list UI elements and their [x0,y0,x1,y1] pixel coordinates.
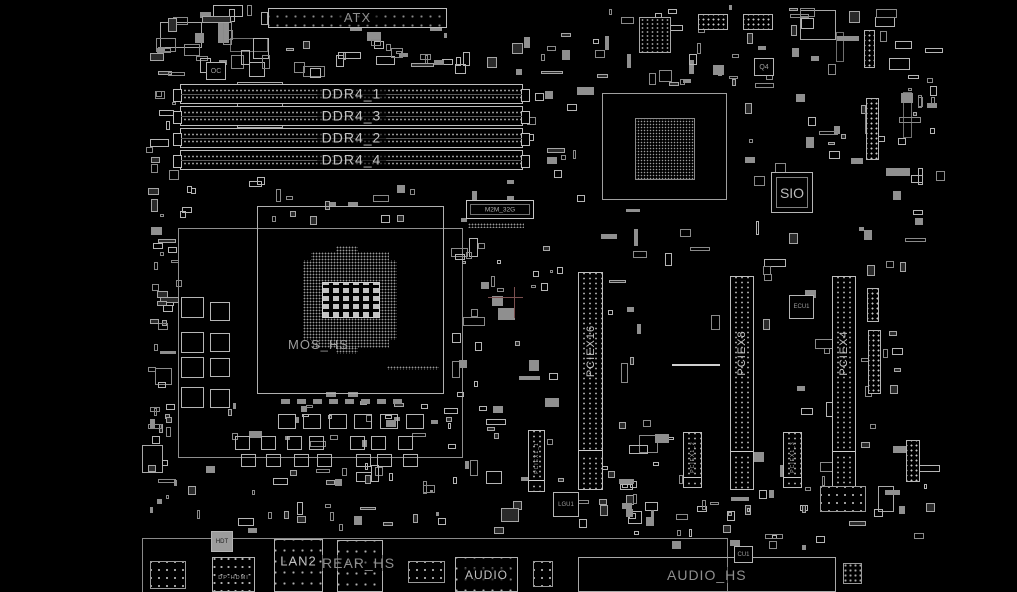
smd-component [800,8,815,17]
smd-component [925,48,943,53]
smd-component [924,484,927,489]
smd-component [646,517,654,526]
smd-component [210,358,230,377]
smd-component [898,138,906,145]
smd-component [908,88,912,91]
smd-component [309,436,324,450]
q4-chip[interactable]: Q4 [754,58,774,76]
smd-component [475,342,482,351]
smd-component [252,490,255,495]
smd-component [210,302,230,321]
pin-grid-tab [336,246,358,253]
smd-component [160,351,176,354]
smd-component [455,254,465,260]
trace-segment [672,364,720,366]
smd-component [486,471,502,484]
smd-component [764,274,772,281]
rear-connector[interactable] [408,561,445,583]
smd-component [801,18,814,29]
slot-latch[interactable] [173,155,182,168]
smd-component [802,545,806,550]
smd-component [529,360,539,371]
smd-component [507,180,514,184]
smd-component [223,21,232,45]
smd-component [448,444,456,449]
smd-component [420,54,431,60]
smd-component [732,54,739,58]
smd-component [210,333,230,352]
smd-component [841,134,846,139]
smd-component [759,490,767,499]
smd-component [330,435,338,440]
smd-component [303,41,310,49]
smd-component [501,508,519,522]
smd-component [146,147,153,153]
ddr4-slot-4-label: DDR4_4 [317,151,387,167]
smd-component [310,68,321,78]
smd-component [749,139,753,143]
smd-component [423,485,435,493]
smd-component [273,478,288,485]
smd-component [899,117,921,123]
smd-component [547,157,557,164]
smd-component [150,139,169,147]
smd-component [680,229,691,237]
smd-component [448,423,451,429]
smd-component [874,509,883,517]
smd-component [386,44,391,51]
smd-component [659,70,672,82]
slot-latch[interactable] [521,155,530,168]
smd-component [915,218,923,225]
ecu1-chip[interactable]: ECU1 [789,295,814,319]
smd-component [197,510,200,519]
smd-component [876,9,897,18]
smd-component [158,382,166,388]
smd-component [462,261,466,264]
smd-component [758,46,766,50]
lan2-label: LAN2 [278,554,319,569]
smd-component [154,408,157,416]
smd-component [683,79,691,83]
smd-component [486,419,506,425]
smd-component [371,465,379,482]
cu1-chip[interactable]: CU1 [734,546,753,563]
smd-component [377,454,392,467]
smd-component [412,433,426,437]
smd-component [791,25,797,36]
smd-component [181,332,204,353]
smd-component [268,512,272,519]
smd-component [512,43,523,54]
smd-component [554,170,562,178]
smd-component [465,461,469,469]
ddr4-slot-3-label: DDR4_3 [317,107,387,123]
smd-component [851,158,863,164]
smd-component [284,511,289,519]
pciex4-slot[interactable]: PCIEX4 [832,276,856,490]
slot-latch[interactable] [173,111,182,124]
smd-component [670,25,683,31]
smd-component [365,475,371,484]
smd-component [210,389,230,408]
smd-component [436,512,439,516]
smd-component [577,87,594,95]
q4-label: Q4 [759,64,768,71]
m2-connector[interactable]: M2M_32G [466,200,534,219]
smd-component [930,128,935,134]
smd-component [801,408,813,415]
smd-component [805,487,811,491]
smd-component [593,39,599,44]
smd-component [557,267,563,274]
smd-component [297,399,306,404]
smd-component [649,73,656,85]
smd-component [899,506,905,514]
smd-component [533,271,539,277]
smd-component [543,246,550,251]
smd-component [316,469,330,473]
smd-component [497,288,504,292]
smd-component [329,399,338,404]
smd-component [541,71,563,74]
atx-label: ATX [338,10,377,25]
smd-component [690,247,710,251]
ddr4-slot-2[interactable]: DDR4_2 [180,128,523,148]
smd-component [403,454,418,467]
smd-component [816,536,825,543]
smd-component [637,324,641,334]
smd-component [672,541,681,549]
fan-header[interactable] [743,14,773,30]
smd-component [769,490,774,498]
smd-component [166,121,170,130]
socket-pad-array [322,282,380,318]
smd-component [286,48,294,51]
rear-hs-edge [142,538,143,592]
smd-component [377,399,386,404]
cu1-label: CU1 [737,552,749,558]
oc-label: OC [211,68,222,75]
smd-component [756,221,759,235]
smd-component [168,18,177,32]
smd-component [608,471,615,478]
smd-component [789,8,798,11]
pin-grid-notch [303,252,311,260]
smd-component [634,229,638,246]
rear-connector[interactable] [150,561,186,589]
smd-component [711,315,720,330]
smd-component [531,285,536,288]
smd-component [634,531,639,535]
smd-component [181,297,204,318]
smd-component [913,112,917,116]
pin-header[interactable] [864,30,875,68]
slot-latch[interactable] [521,89,530,102]
smd-component [487,57,497,68]
smd-component [913,210,923,215]
smd-component [765,534,783,539]
smd-component [241,454,256,467]
smd-component [410,189,415,195]
ddr4-slot-3[interactable]: DDR4_3 [180,106,523,126]
atx-tab [261,12,268,25]
slot-latch[interactable] [521,133,530,146]
smd-component [459,360,467,368]
smd-component [547,439,553,445]
smd-component [233,403,236,409]
smd-component [174,480,177,486]
smd-component [494,433,499,439]
smd-component [689,54,697,65]
smd-component [621,17,634,24]
smd-component [301,406,307,412]
smd-component [643,420,651,427]
smd-component [829,151,840,159]
pciex1-2-slot[interactable]: PCIEX1_2 [683,432,702,488]
smd-component [806,137,814,148]
smd-component [188,486,196,495]
smd-component [535,93,544,101]
smd-component [306,405,313,408]
smd-component [166,417,172,423]
smd-component [493,406,503,413]
smd-component [541,283,548,291]
smd-component [389,473,393,481]
smd-component [792,48,799,57]
smd-component [148,367,156,372]
smd-component [453,477,457,484]
smd-component [930,86,937,96]
smd-component [755,83,774,88]
pciex1-2-label: PCIEX1_2 [690,432,696,482]
smd-component [676,514,688,520]
smd-component [463,317,485,326]
pin-header[interactable] [868,330,881,394]
pciex4-label: PCIEX4 [838,308,850,398]
smd-component [166,427,171,437]
smd-component [901,93,913,103]
smd-component [561,155,566,160]
smd-component [608,310,613,315]
smd-component [413,514,418,523]
smd-component [914,533,924,539]
smd-component [727,511,735,521]
smd-component [380,414,398,429]
smd-component [184,44,200,56]
smd-component [294,454,309,467]
smd-component [601,234,617,239]
smd-component [176,280,182,287]
sata-connector[interactable] [820,486,866,512]
smd-component [470,460,478,476]
smd-component [150,53,164,61]
smd-component [626,209,640,212]
smd-component [498,308,515,320]
smd-component [549,373,558,380]
smd-component [864,230,872,240]
smd-component [356,454,371,467]
smd-component [927,78,933,83]
smd-component [630,357,634,365]
smd-component [665,253,672,266]
smd-component [926,503,935,512]
smd-component [431,420,438,424]
smd-component [837,36,859,41]
smd-component [150,507,153,513]
smd-component [266,454,281,467]
slot-latch[interactable] [173,89,182,102]
pin-grid-notch [389,340,397,348]
hdt-chip[interactable]: HDT [211,531,233,552]
smd-component [162,460,168,466]
smd-component [158,323,168,330]
smd-component [463,52,470,66]
smd-component [828,64,836,75]
smd-component [524,37,530,48]
front-panel-header[interactable] [866,98,879,160]
smd-component [651,510,654,517]
lgu1-label: LGU1 [558,502,574,508]
smd-component [160,214,164,217]
pin-header[interactable] [867,288,879,322]
fan-header[interactable] [698,14,728,30]
smd-component [629,445,648,454]
slot-latch[interactable] [521,111,530,124]
smd-component [438,518,446,525]
smd-component [796,94,805,102]
u2-chip[interactable] [639,17,671,53]
smd-component [754,176,765,186]
smd-component [159,110,174,116]
smd-component [156,38,176,52]
smd-component [562,50,570,60]
smd-component [731,497,749,501]
smd-component [600,505,608,516]
rear-connector[interactable] [533,561,553,587]
smd-component [519,376,540,380]
smd-component [354,516,362,525]
ddr4-slot-4[interactable]: DDR4_4 [180,150,523,170]
smd-component [371,39,381,46]
smd-component [235,436,250,450]
smd-component [157,499,162,504]
smd-component [597,74,608,78]
smd-component [150,319,159,324]
smd-component [870,424,876,429]
mos-hs-label: MOS_HS [288,337,349,352]
slot-latch[interactable] [173,133,182,146]
smd-component [373,195,389,202]
ddr4-slot-1[interactable]: DDR4_1 [180,84,523,104]
smd-component [156,91,162,97]
smd-component [911,175,923,183]
smd-component [936,171,945,181]
smd-component [457,392,464,397]
smd-component [669,82,679,86]
smd-component [181,357,204,378]
pciex1-3-slot[interactable]: PCIEX1_3 [783,432,802,488]
smd-component [345,399,354,404]
smd-component [281,399,290,404]
smd-component [335,479,342,486]
smd-component [861,442,870,448]
smd-component [154,262,158,270]
smd-component [478,243,485,249]
pciex8-slot[interactable]: PCIEX8 [730,276,754,490]
smd-component [567,104,577,111]
smd-component [849,521,866,526]
smd-component [653,462,659,466]
smd-component [446,417,452,422]
smd-component [550,270,553,273]
smd-component [181,387,204,408]
smd-component [383,522,393,526]
atx-power-connector[interactable]: ATX [268,8,447,28]
smd-component [474,381,478,387]
smd-connector [843,563,862,584]
smd-component [900,262,906,272]
pciex1-1-label: PCIEX1_1 [534,433,540,483]
smd-component [677,530,681,536]
smd-component [883,349,888,358]
smd-component [880,31,887,42]
smd-component [541,54,545,61]
smd-component [702,500,706,510]
smd-component [278,414,296,429]
smd-component [893,191,901,200]
pin-header[interactable] [906,440,920,482]
sio-label: SIO [780,185,804,201]
pch-bga-chip[interactable] [635,118,695,180]
pciex16-slot[interactable]: PCIEX16 [578,272,603,490]
pciex1-1-slot[interactable]: PCIEX1_1 [528,430,545,492]
dp-hdmi-port[interactable]: DP-HDMI [212,557,255,592]
smd-component [547,148,565,153]
smd-component [849,11,860,23]
smd-component [338,52,361,59]
smd-component [317,454,332,467]
ddr4-slot-1-label: DDR4_1 [317,85,387,101]
lgu1-chip[interactable]: LGU1 [553,492,579,517]
smd-component [398,436,413,450]
smd-component [626,509,633,517]
pcb-board-view: ATX DDR4_1 DDR4_3 DDR4_2 DDR4_4 MOS_HS M… [0,0,1017,592]
smd-component [150,419,155,428]
smd-component [822,476,825,486]
smd-component [811,56,819,61]
smd-component [297,502,303,515]
audio-jack-block[interactable]: AUDIO [455,557,518,592]
smd-component [421,404,428,409]
smd-component [497,260,501,264]
oc-chip[interactable]: OC [206,62,226,80]
smd-component [303,414,321,429]
smd-component [655,434,669,443]
smd-component [444,33,447,38]
lan2-port[interactable]: LAN2 [274,539,323,592]
smd-component [354,414,372,429]
pciex1-3-label: PCIEX1_3 [790,432,796,482]
smd-component [471,309,478,317]
smd-component [151,157,160,163]
smd-component [153,243,163,249]
dp-hdmi-label: DP-HDMI [216,575,251,581]
pin-grid-notch [389,252,397,260]
smd-component [166,495,169,499]
sio-chip[interactable]: SIO [771,172,813,213]
smd-component [828,142,835,145]
